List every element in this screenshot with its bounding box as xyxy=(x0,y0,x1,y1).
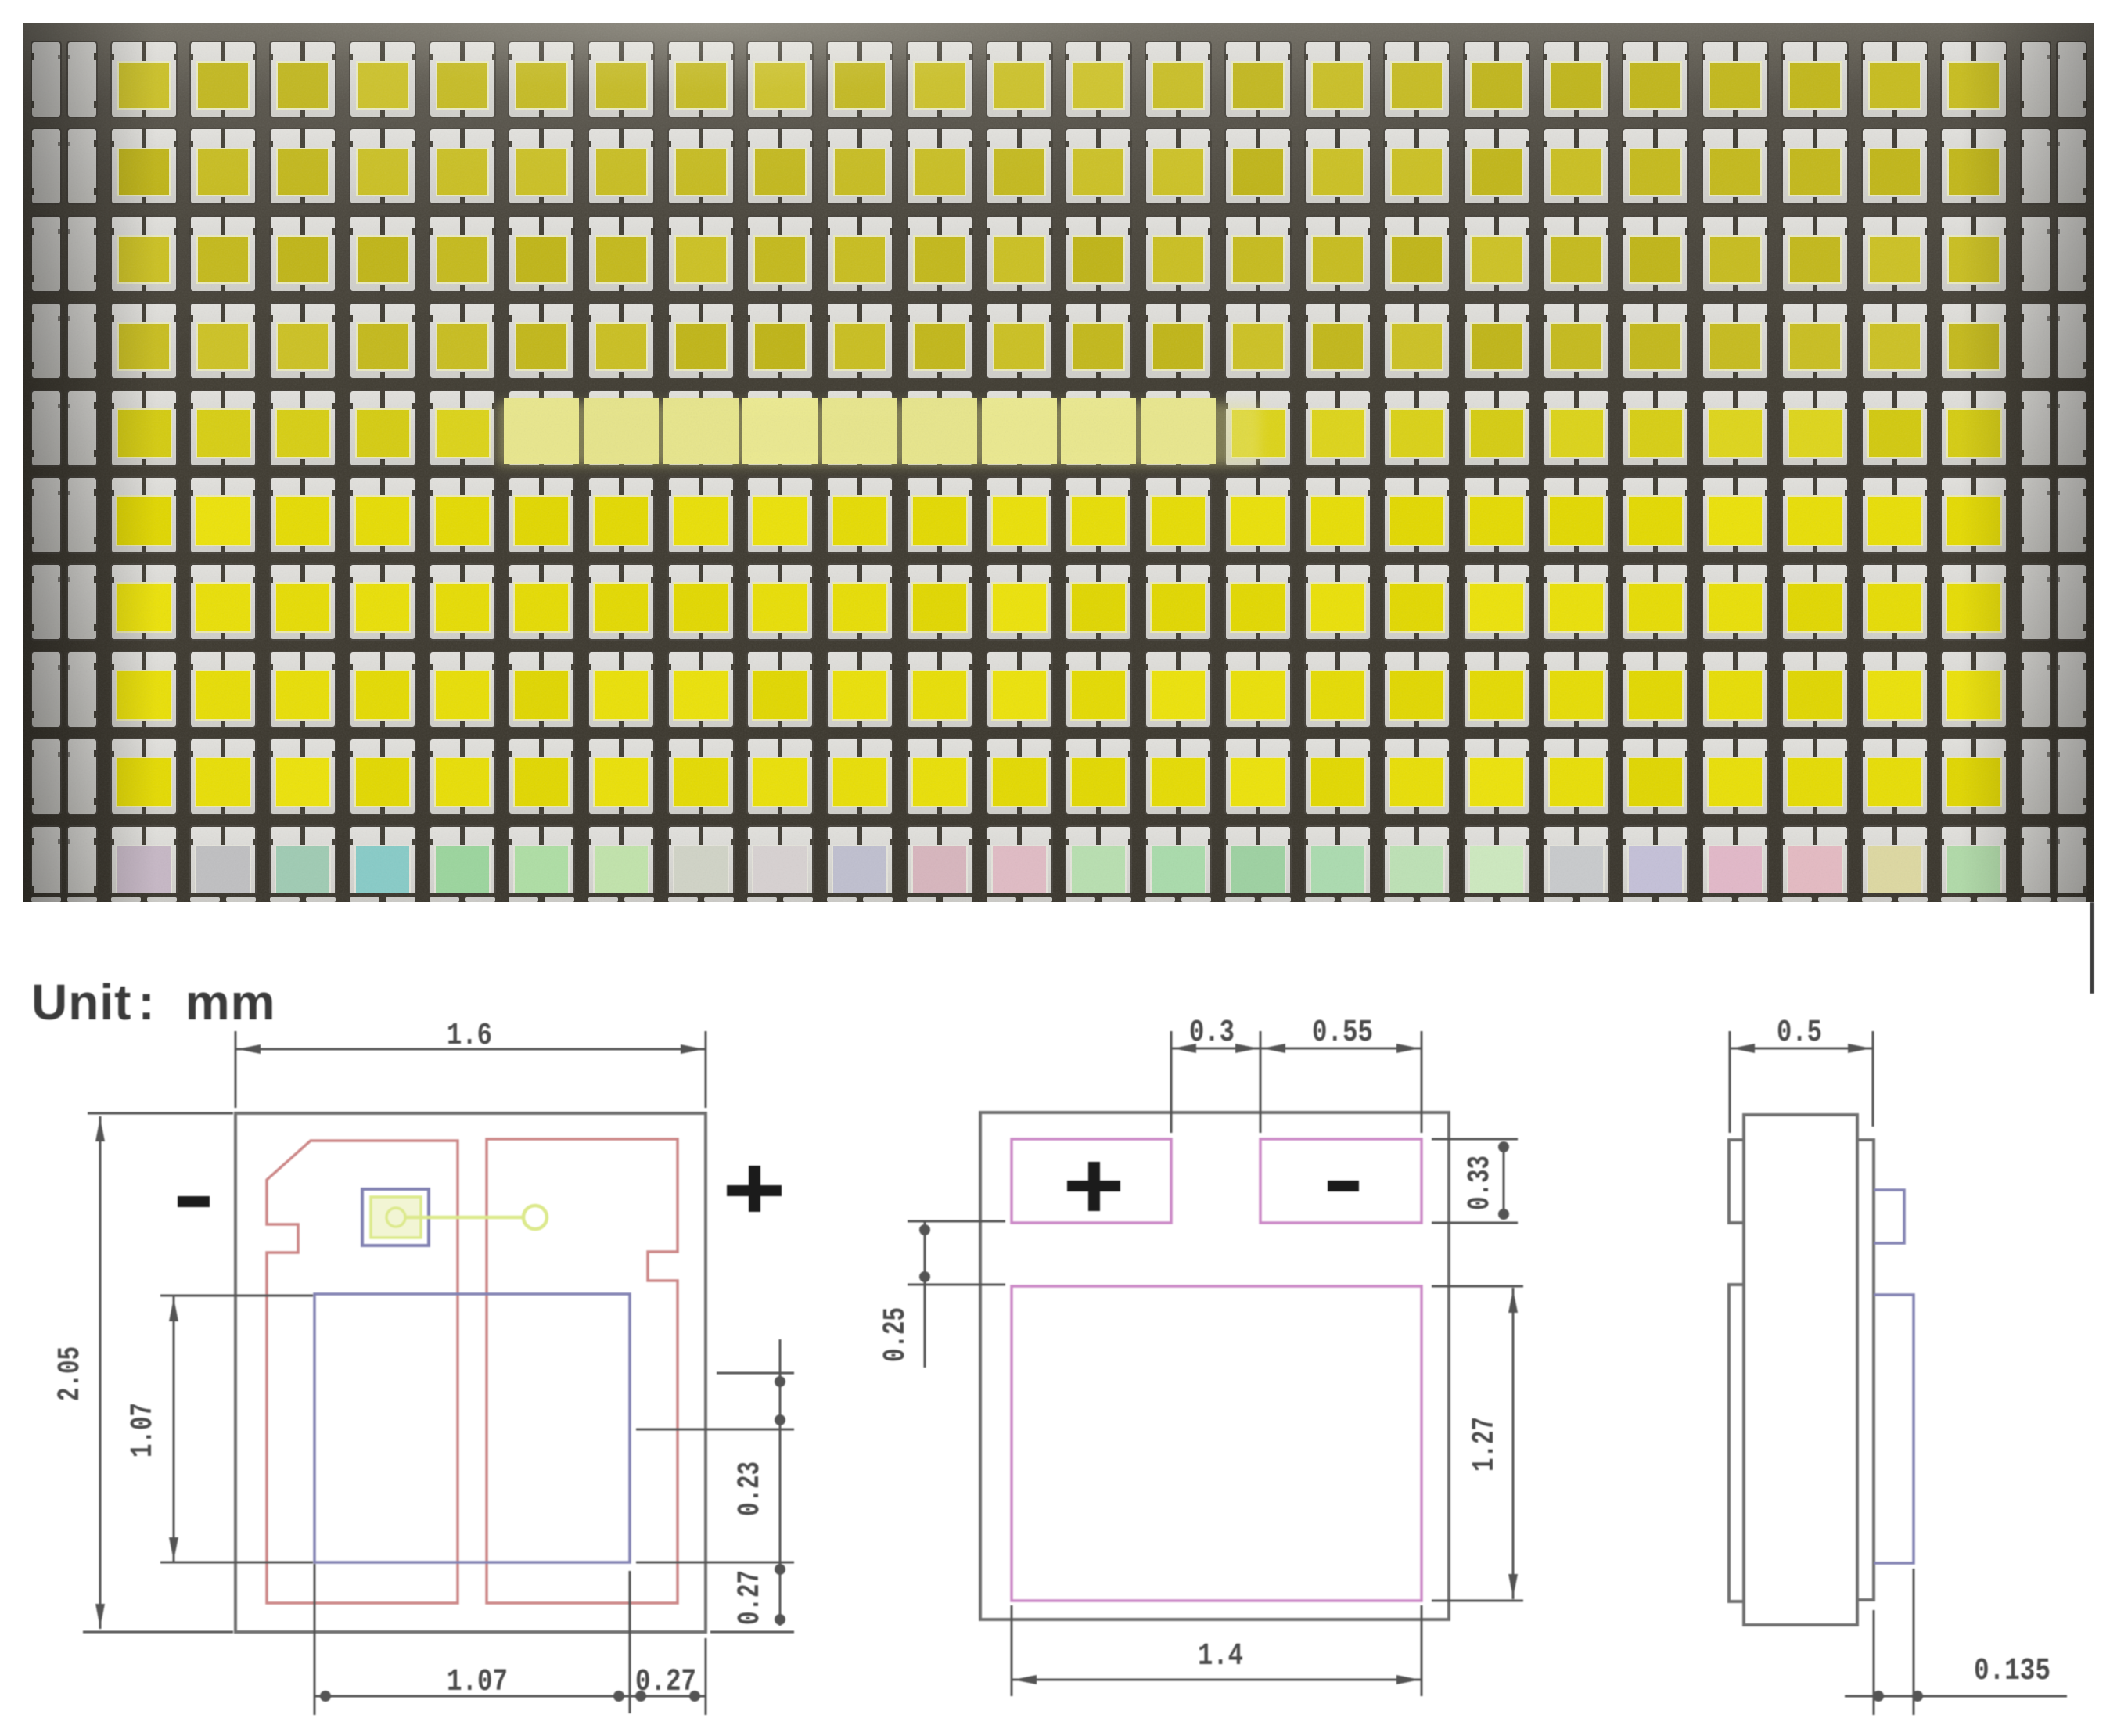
svg-text:1.07: 1.07 xyxy=(126,1403,161,1457)
svg-text:2.05: 2.05 xyxy=(53,1346,88,1401)
svg-text:0.55: 0.55 xyxy=(1312,1015,1373,1051)
svg-text:1.27: 1.27 xyxy=(1468,1417,1503,1472)
svg-text:0.27: 0.27 xyxy=(733,1570,768,1625)
svg-text:Unit:mm: Unit:mm xyxy=(31,974,276,1030)
svg-text:0.25: 0.25 xyxy=(879,1307,914,1362)
svg-text:0.5: 0.5 xyxy=(1777,1015,1822,1051)
svg-text:1.07: 1.07 xyxy=(447,1665,508,1700)
svg-text:0.135: 0.135 xyxy=(1974,1654,2051,1689)
svg-text:0.33: 0.33 xyxy=(1463,1156,1498,1210)
svg-text:0.23: 0.23 xyxy=(733,1461,768,1516)
svg-text:1.4: 1.4 xyxy=(1198,1639,1243,1674)
